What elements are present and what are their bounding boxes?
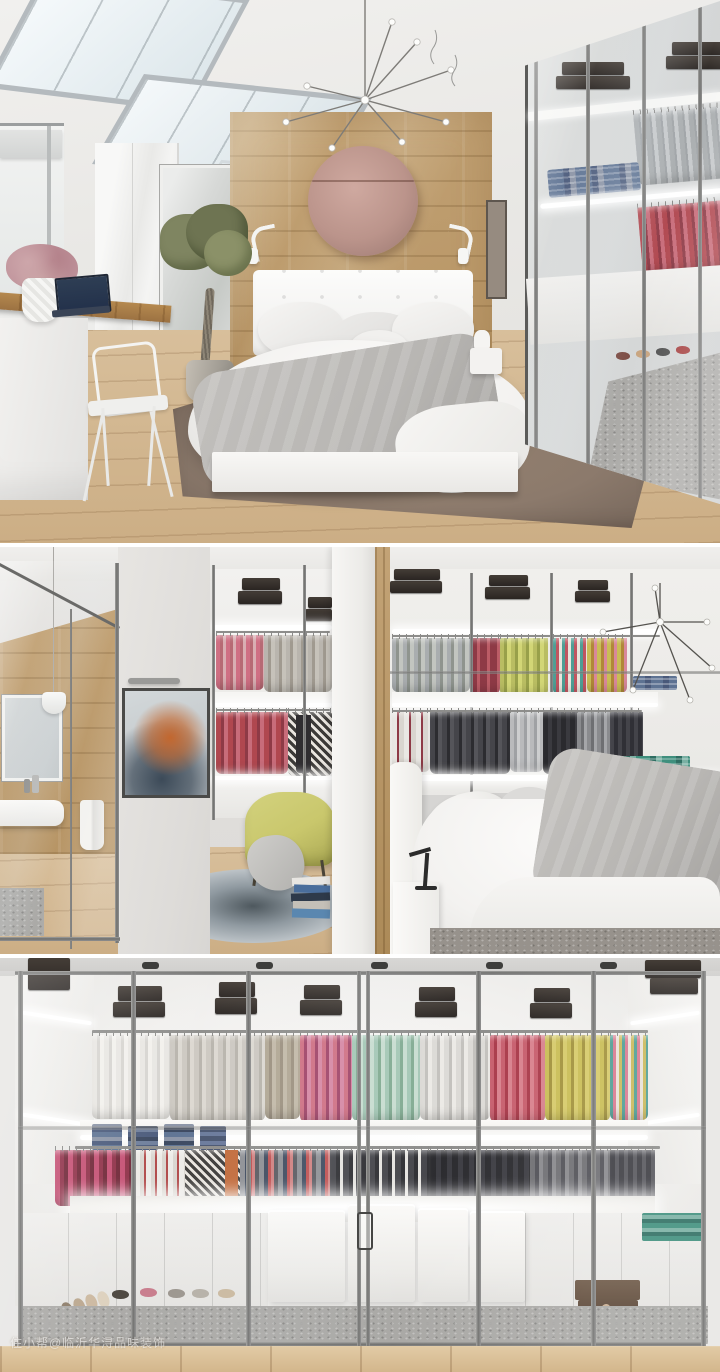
clothes-rack-grey-sage — [392, 638, 470, 692]
roller-shade — [0, 130, 62, 158]
recessed-light — [371, 962, 388, 969]
bedside-lamp — [474, 330, 490, 350]
clothes-rack-charcoal — [430, 712, 510, 774]
divider-wood-edge — [375, 547, 390, 954]
sputnik-lamp — [595, 583, 720, 705]
storage-box — [242, 578, 280, 590]
recessed-light — [600, 962, 617, 969]
bedside-table — [470, 348, 502, 374]
desk-lamp-base — [415, 886, 437, 890]
recessed-light — [256, 962, 273, 969]
recessed-light — [486, 962, 503, 969]
sputnik-chandelier — [250, 0, 480, 170]
sconce-head — [458, 248, 468, 264]
abstract-painting — [122, 688, 210, 798]
desk-cabinet — [0, 318, 88, 500]
storage-box — [489, 575, 528, 586]
clothes-rack-silver — [510, 712, 543, 772]
storage-box — [394, 569, 440, 580]
book-stack — [292, 908, 330, 918]
grey-rug — [430, 928, 720, 954]
glass-frame — [303, 565, 306, 820]
glass-frame — [212, 565, 215, 820]
photo-walkin-closet — [0, 958, 720, 1372]
led-strip — [214, 625, 332, 630]
storage-box — [238, 591, 282, 604]
clothes-rack-lime — [500, 638, 548, 696]
watermark: 住小帮@临沂华浔品味装饰 — [10, 1334, 166, 1351]
framed-art — [486, 200, 507, 299]
clothes-rack-taupe — [264, 635, 332, 692]
glass-reflection — [0, 971, 720, 1347]
picture-light — [128, 678, 180, 684]
led-strip — [212, 776, 332, 780]
storage-box — [485, 587, 530, 599]
glass-frame — [115, 563, 119, 943]
clothes-rack-red-dresses — [216, 712, 288, 774]
photo-collage: 住小帮@临沂华浔品味装饰 — [0, 0, 720, 1372]
storage-box — [308, 597, 332, 608]
storage-box — [305, 609, 332, 621]
divider-pillar — [332, 547, 375, 954]
plant-foliage — [204, 230, 252, 276]
photo-closet-bedroom — [0, 547, 720, 954]
glass-reflection — [528, 0, 720, 505]
storage-box — [390, 581, 442, 593]
clothes-rack-burgundy — [470, 638, 500, 694]
glass-frame — [0, 937, 120, 941]
clothes-rack-stripe-teal — [553, 638, 587, 695]
bed-base — [212, 452, 518, 492]
clothes-rack-pink — [216, 635, 264, 690]
photo-bedroom-attic — [0, 0, 720, 543]
recessed-light — [142, 962, 159, 969]
glass-wardrobe — [525, 0, 720, 505]
led-strip — [214, 703, 332, 707]
disc-seam — [312, 180, 414, 182]
glass-frame — [70, 609, 72, 949]
